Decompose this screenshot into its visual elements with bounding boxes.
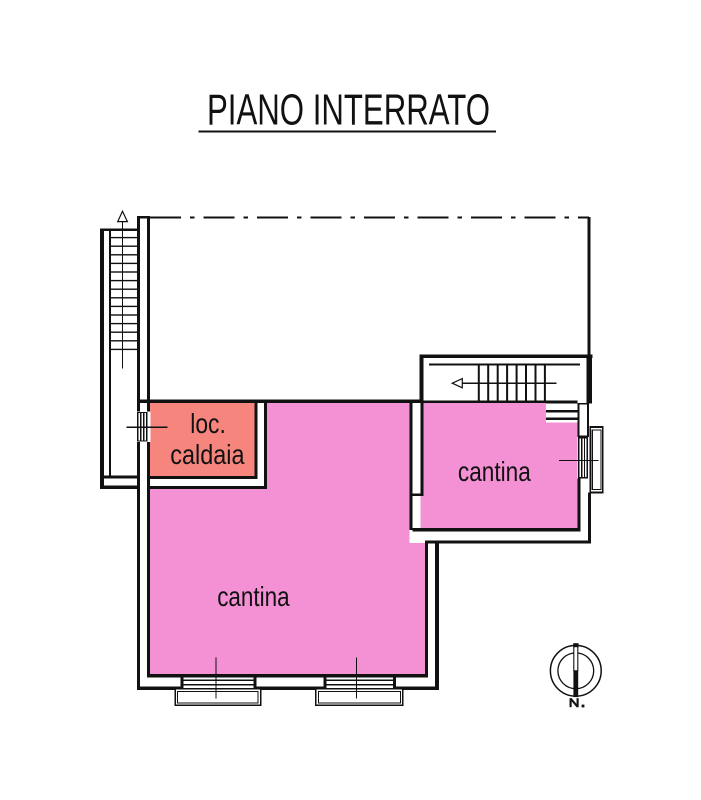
svg-text:caldaia: caldaia — [170, 439, 245, 470]
svg-text:cantina: cantina — [217, 581, 290, 612]
svg-text:PIANO INTERRATO: PIANO INTERRATO — [207, 86, 490, 134]
svg-text:cantina: cantina — [458, 456, 531, 487]
svg-text:loc.: loc. — [190, 408, 226, 439]
